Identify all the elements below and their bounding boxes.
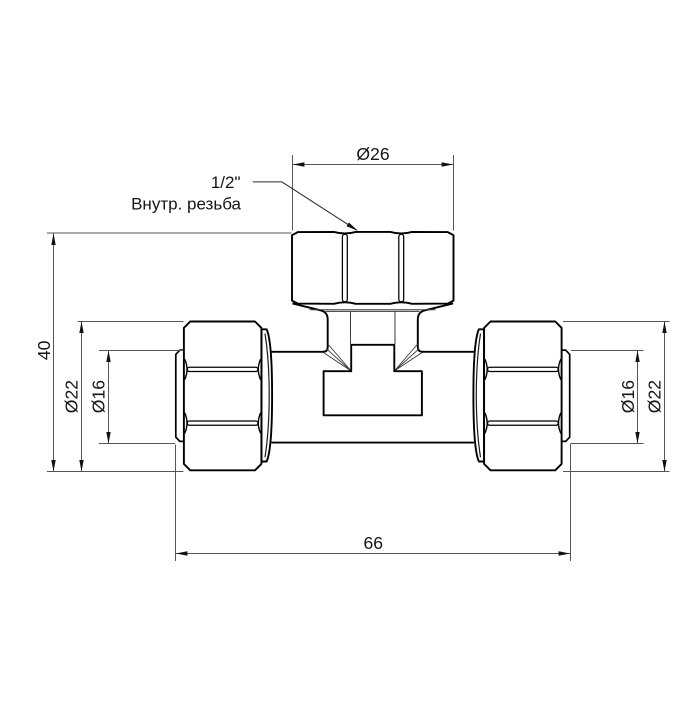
- svg-text:1/2": 1/2": [211, 173, 241, 192]
- svg-text:Ø22: Ø22: [62, 380, 82, 413]
- svg-text:Ø26: Ø26: [356, 144, 389, 164]
- svg-text:66: 66: [364, 533, 384, 553]
- svg-text:Ø16: Ø16: [89, 380, 109, 413]
- svg-text:Ø16: Ø16: [618, 380, 638, 413]
- svg-text:Внутр. резьба: Внутр. резьба: [131, 195, 241, 214]
- svg-text:Ø22: Ø22: [645, 380, 665, 413]
- svg-text:40: 40: [34, 340, 54, 360]
